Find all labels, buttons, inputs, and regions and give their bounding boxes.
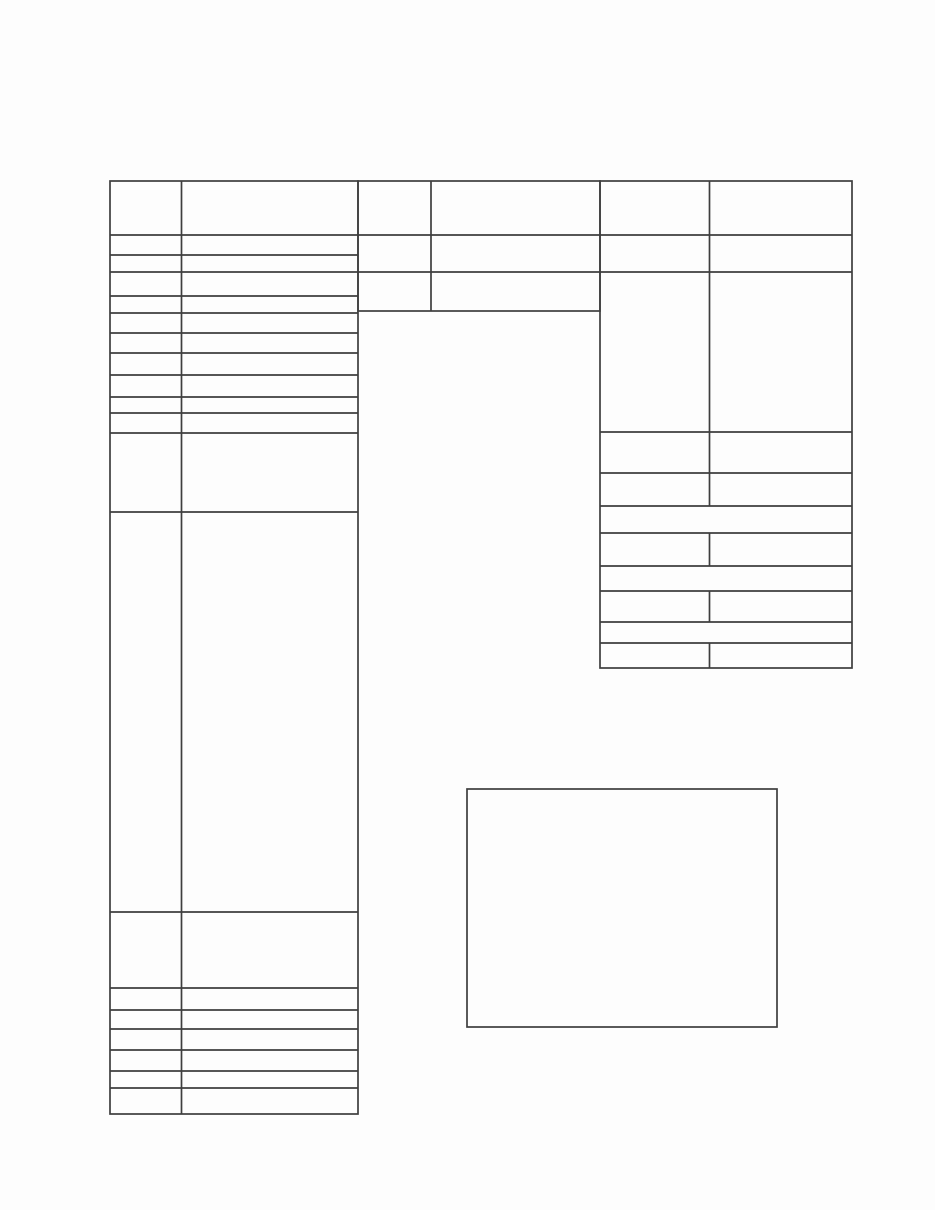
right-table	[600, 181, 852, 668]
left-table-border	[110, 181, 358, 1114]
middle-table-border	[358, 181, 600, 311]
document-page	[0, 0, 935, 1210]
left-table	[110, 181, 358, 1114]
form-line-art	[0, 0, 935, 1210]
right-table-border	[600, 181, 852, 668]
middle-table	[358, 181, 600, 311]
empty-box	[467, 789, 777, 1027]
